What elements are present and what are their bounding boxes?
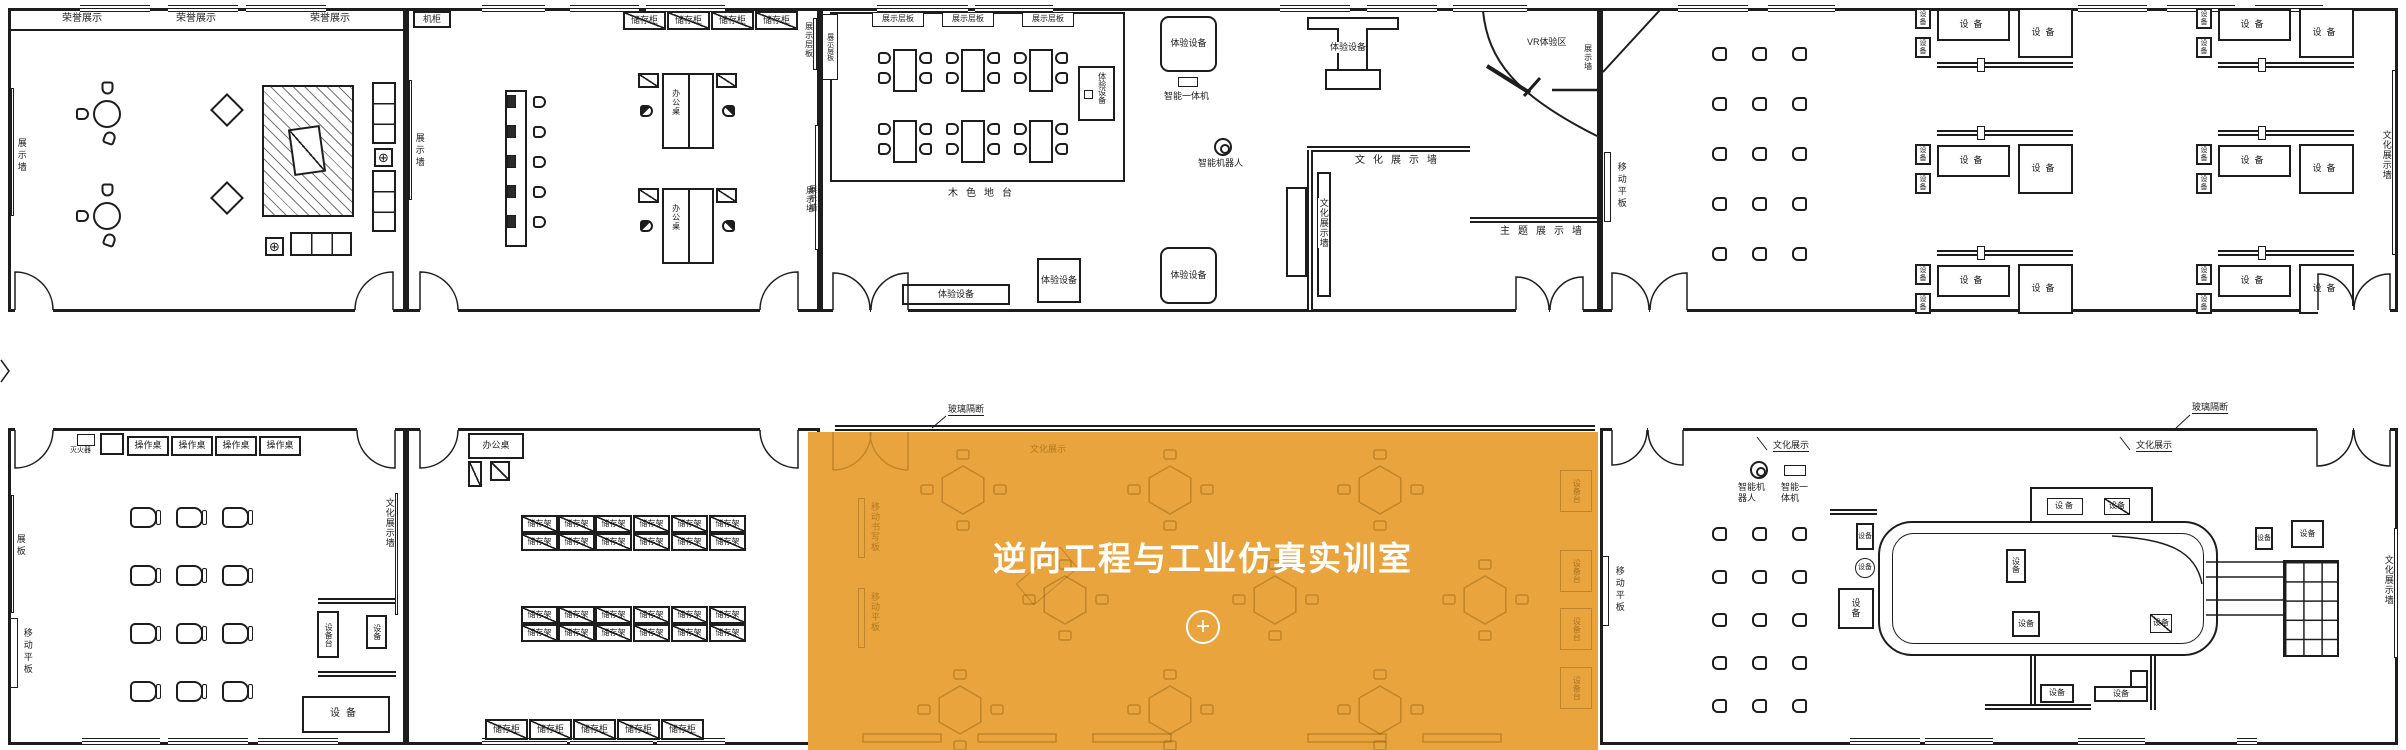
chair xyxy=(533,156,546,168)
storage-cabinet: 储存柜 xyxy=(623,11,666,30)
chair xyxy=(1792,97,1807,111)
cabinet xyxy=(638,73,659,88)
ghost-equipment-stand-label: 设备台 xyxy=(1572,479,1581,503)
window xyxy=(975,5,1053,12)
chair xyxy=(1792,197,1807,211)
door-opening xyxy=(2354,426,2390,434)
chair xyxy=(533,216,546,228)
equipment-box: 设备 xyxy=(2299,144,2354,194)
table xyxy=(893,49,917,92)
storage-rack: 储存架 xyxy=(709,533,746,551)
chair xyxy=(1752,570,1767,584)
desk-side xyxy=(248,626,253,641)
tea-table xyxy=(288,125,326,176)
monitor xyxy=(507,125,516,138)
door-opening xyxy=(1612,426,1647,434)
chair xyxy=(1712,247,1727,261)
equipment-box: 设备 xyxy=(2196,37,2212,58)
lshape-base: 设备 xyxy=(2094,686,2148,702)
chair xyxy=(1014,123,1027,135)
chair xyxy=(1712,699,1727,713)
equipment-rail xyxy=(1985,704,2091,710)
training-desk xyxy=(130,565,157,586)
chair xyxy=(878,143,891,155)
chair xyxy=(987,143,1000,155)
equipment-rail-v xyxy=(2150,656,2156,710)
chair xyxy=(1752,699,1767,713)
smart-aio-unit xyxy=(1178,77,1198,87)
pallet-grid xyxy=(2283,560,2339,657)
cabinet xyxy=(100,433,124,455)
desk-side xyxy=(202,626,207,641)
crosshair-icon: ⊕ xyxy=(269,240,280,254)
mobile-panel-label: 移动平板 xyxy=(22,628,33,676)
equipment-box: 设备 xyxy=(1856,523,1874,550)
equipment-box: 设备 xyxy=(2196,293,2212,314)
equipment-rail xyxy=(1937,130,2073,136)
rail-slider xyxy=(1977,126,1985,140)
equipment-box: 设备 xyxy=(1838,588,1874,629)
ghost-culture-display-label: 文化展示 xyxy=(1030,442,1066,455)
cabinet xyxy=(716,188,737,203)
cabinet xyxy=(468,461,482,487)
theme-wall-label: 主题展示墙 xyxy=(1500,226,1590,238)
corner-shelf: 展示层板 xyxy=(822,14,838,80)
storage-rack: 储存架 xyxy=(709,606,746,624)
floor-plan: 荣誉展示 荣誉展示 荣誉展示 展示墙 ⊕ ⊕ 机柜 储存柜 储存柜储存柜储存柜 … xyxy=(0,0,2406,750)
chair xyxy=(640,220,653,232)
window xyxy=(2078,738,2145,745)
theme-wall xyxy=(1470,217,1597,223)
chair xyxy=(1792,570,1807,584)
equipment-box: 设备 xyxy=(2196,8,2212,29)
display-wall-panel xyxy=(409,80,412,200)
chair xyxy=(987,72,1000,84)
culture-wall-label: 文化展示墙 xyxy=(1355,155,1445,167)
equipment-rail xyxy=(2218,250,2354,256)
operation-desk: 操作桌 xyxy=(127,436,169,456)
chair xyxy=(878,72,891,84)
mobile-panel xyxy=(1602,556,1609,626)
door-opening xyxy=(420,306,458,314)
chair xyxy=(946,52,959,64)
window xyxy=(258,738,338,745)
equipment-box: 设备 xyxy=(1915,144,1931,165)
room-office[interactable] xyxy=(406,8,820,312)
culture-wall-panel xyxy=(2394,528,2398,658)
round-table xyxy=(93,100,121,128)
vr-zone-label: VR体验区 xyxy=(1527,37,1567,48)
experience-equipment-label: 体验设备 xyxy=(1330,42,1366,53)
display-shelf: 展示层板 xyxy=(1022,12,1074,27)
crosshair-icon: ⊕ xyxy=(378,151,389,165)
equipment-group: 设备设备设备设备 xyxy=(2196,130,2354,196)
equipment-box: 设备 xyxy=(1915,37,1931,58)
mobile-panel-label: 移动平板 xyxy=(1614,566,1625,614)
training-desk xyxy=(130,623,157,644)
expand-room-button[interactable]: + xyxy=(1186,610,1220,644)
chair xyxy=(919,72,932,84)
display-board-label: 展板 xyxy=(15,534,26,558)
monitor xyxy=(507,185,516,198)
window xyxy=(877,5,968,12)
chair xyxy=(987,123,1000,135)
equipment-box: 设备 xyxy=(1915,173,1931,194)
training-desk xyxy=(176,681,203,702)
office-desk-label: 办公桌 xyxy=(671,204,681,231)
chair xyxy=(1712,527,1727,541)
culture-wall-label-v: 文化展示墙 xyxy=(1318,198,1329,248)
ghost-mobile-panel xyxy=(858,588,865,648)
smart-aio-unit xyxy=(1784,465,1806,476)
chair xyxy=(533,126,546,138)
smart-robot-icon xyxy=(1214,138,1232,156)
equipment-box: 设备 xyxy=(2218,265,2291,297)
storage-rack: 储存架 xyxy=(558,606,595,624)
chair xyxy=(946,123,959,135)
equipment-box: 设备 xyxy=(1915,8,1931,29)
display-shelf: 展示层板 xyxy=(872,12,924,27)
ghost-mobile-panel-label: 移动平板 xyxy=(869,592,882,632)
window xyxy=(2237,738,2257,745)
equipment-box: 设备 xyxy=(2218,145,2291,177)
chair xyxy=(1792,147,1807,161)
corridor-arrow xyxy=(1,360,9,382)
display-shelf-label: 展示层板 xyxy=(826,33,833,61)
door-opening xyxy=(2317,426,2353,434)
chair xyxy=(102,184,114,197)
equipment-group: 设备设备设备设备 xyxy=(1915,130,2073,196)
desk-side xyxy=(202,568,207,583)
desk-side xyxy=(248,684,253,699)
chair xyxy=(640,105,653,117)
office-desk-cluster: 办公桌 xyxy=(638,73,742,149)
rail-slider xyxy=(2258,246,2266,260)
chair xyxy=(76,210,89,222)
chair xyxy=(919,52,932,64)
chair xyxy=(878,52,891,64)
sofa xyxy=(290,232,352,256)
door-opening xyxy=(355,306,393,314)
chair xyxy=(722,220,735,232)
storage-rack: 储存架 xyxy=(521,515,558,533)
smart-robot-label: 智能机器人 xyxy=(1198,158,1243,169)
side-table: ⊕ xyxy=(374,148,393,167)
chair xyxy=(1792,656,1807,670)
door-opening xyxy=(1516,306,1549,314)
honor-display-label: 荣誉展示 xyxy=(310,13,350,25)
wood-platform-label: 木色地台 xyxy=(948,188,1020,200)
equipment-rail xyxy=(1830,509,1877,515)
equipment-group: 设备设备设备设备 xyxy=(1915,8,2073,74)
window xyxy=(482,5,545,12)
office-desk: 办公桌 xyxy=(662,73,714,149)
equipment-box: 设备 xyxy=(2018,264,2073,314)
desk-side xyxy=(248,568,253,583)
chair xyxy=(722,105,735,117)
chair xyxy=(1014,143,1027,155)
storage-rack: 储存架 xyxy=(633,533,670,551)
storage-rack: 储存架 xyxy=(633,606,670,624)
equipment-label: 设备 xyxy=(1858,564,1872,571)
experience-equipment-label: 体验设备 xyxy=(1097,72,1107,104)
chair xyxy=(1752,247,1767,261)
door-opening xyxy=(1550,306,1583,314)
storage-rack: 储存架 xyxy=(595,533,632,551)
chair xyxy=(946,72,959,84)
equipment-rail-v xyxy=(2030,656,2036,710)
display-wall-label: 展示墙 xyxy=(808,185,818,212)
monitor xyxy=(507,155,516,168)
door-opening xyxy=(2318,306,2354,314)
office-desk: 办公桌 xyxy=(662,188,714,264)
smart-aio-label: 智能一体机 xyxy=(1164,91,1209,102)
glass-partition-wall xyxy=(835,425,1595,431)
equipment-stand-label: 设备台 xyxy=(324,623,332,647)
window xyxy=(1768,5,1835,12)
glass-partition-label: 玻璃隔断 xyxy=(2192,402,2228,414)
desk-side xyxy=(156,510,161,525)
door-opening xyxy=(760,426,798,434)
chair xyxy=(1014,52,1027,64)
culture-wall-label-v: 文化展示墙 xyxy=(2383,555,2394,605)
chair xyxy=(1792,613,1807,627)
equipment-label: 设备 xyxy=(2011,558,2021,575)
storage-cabinet: 储存柜 xyxy=(755,11,798,30)
equipment-label: 设备 xyxy=(1850,599,1862,618)
chair xyxy=(1055,52,1068,64)
training-desk xyxy=(130,507,157,528)
equipment-box: 设备 xyxy=(2150,614,2172,633)
chair xyxy=(533,96,546,108)
equipment-rail xyxy=(2218,130,2354,136)
ghost-equipment-stand: 设备台 xyxy=(1560,470,1592,512)
chair xyxy=(1752,47,1767,61)
room-highlight-overlay[interactable]: 文化展示 移动书写板 移动平板 设备台 设备台 设备台 设备台 逆向工程与工业仿… xyxy=(808,432,1598,750)
experience-equipment-rounded: 体验设备 xyxy=(1160,16,1217,72)
chair xyxy=(1712,147,1727,161)
equipment-group: 设备设备设备设备 xyxy=(2196,8,2354,74)
experience-equipment-square: 体验设备 xyxy=(1037,258,1081,303)
experience-equipment-box: 体验设备 xyxy=(1078,66,1115,121)
culture-wall-panel xyxy=(2392,70,2396,255)
office-desk-cluster: 办公桌 xyxy=(638,188,742,264)
glass-partition-label: 玻璃隔断 xyxy=(948,404,984,416)
table xyxy=(961,49,985,92)
equipment-label: 设备 xyxy=(1858,533,1872,540)
equipment-lshape: 设备 xyxy=(2094,670,2148,702)
monitor xyxy=(507,215,516,228)
storage-rack: 储存架 xyxy=(521,606,558,624)
chair xyxy=(533,186,546,198)
ghost-floorplan xyxy=(808,432,1598,750)
equipment-rail xyxy=(2218,62,2354,68)
training-desk xyxy=(222,623,249,644)
chair xyxy=(946,143,959,155)
storage-rack: 储存架 xyxy=(521,533,558,551)
desk-side xyxy=(156,626,161,641)
window xyxy=(1367,5,1437,12)
culture-wall-label-v: 文化展示墙 xyxy=(2381,130,2392,180)
office-desk: 办公桌 xyxy=(468,433,524,459)
storage-cabinet: 储存柜 xyxy=(529,719,572,740)
cabinet xyxy=(716,73,737,88)
door-opening xyxy=(833,306,870,314)
smart-robot-icon xyxy=(1750,461,1768,479)
table xyxy=(961,120,985,163)
training-desk xyxy=(176,507,203,528)
equipment-box: 设备 xyxy=(366,615,387,649)
equipment-box: 设备 xyxy=(2291,520,2324,548)
storage-cabinet: 储存柜 xyxy=(661,719,704,740)
monitor xyxy=(507,95,516,108)
rail-slider xyxy=(1977,246,1985,260)
display-shelf: 展示层板 xyxy=(942,12,994,27)
rail-slider xyxy=(2258,58,2266,72)
operation-desk: 操作桌 xyxy=(259,436,301,456)
training-desk xyxy=(222,507,249,528)
display-board-panel xyxy=(11,495,14,613)
culture-display-label: 文化展示 xyxy=(1773,440,1809,452)
honor-display-label: 荣誉展示 xyxy=(176,13,216,25)
display-wall-label: 展示墙 xyxy=(414,133,425,169)
chair xyxy=(1712,570,1727,584)
equipment-box: 设备 xyxy=(1937,145,2010,177)
equipment-box: 设备 xyxy=(2018,144,2073,194)
equipment-box: 设备 xyxy=(1915,264,1931,285)
culture-wall xyxy=(1307,146,1470,152)
rail-slider xyxy=(1977,58,1985,72)
desk-side xyxy=(202,510,207,525)
chair xyxy=(1014,72,1027,84)
chair xyxy=(1055,123,1068,135)
equipment-box: 设备 xyxy=(2018,8,2073,58)
desk-side xyxy=(248,510,253,525)
storage-cabinet: 储存柜 xyxy=(617,719,660,740)
equipment-dot xyxy=(1084,90,1093,99)
server-cabinet: 机柜 xyxy=(413,11,451,28)
rail-slider xyxy=(2258,126,2266,140)
side-table: ⊕ xyxy=(265,237,284,256)
ibeam-base xyxy=(1325,69,1381,90)
honor-display-label: 荣誉展示 xyxy=(62,13,102,25)
desk-side xyxy=(202,684,207,699)
equipment-rail xyxy=(318,671,396,677)
equipment-box: 设备 xyxy=(2040,684,2074,703)
chair xyxy=(1792,247,1807,261)
experience-equipment-rounded: 体验设备 xyxy=(1160,247,1217,304)
door-opening xyxy=(420,426,458,434)
storage-rack: 储存架 xyxy=(633,515,670,533)
chair xyxy=(919,123,932,135)
culture-wall-shelf xyxy=(1286,187,1307,277)
mobile-panel xyxy=(1604,152,1611,222)
window xyxy=(1925,738,1993,745)
window xyxy=(82,738,160,745)
chair xyxy=(1792,699,1807,713)
display-shelf-label: 展示层板 xyxy=(804,22,814,58)
window xyxy=(1678,5,1748,12)
ghost-equipment-stand: 设备台 xyxy=(1560,608,1592,650)
equipment-rail xyxy=(318,598,396,604)
storage-rack: 储存架 xyxy=(671,624,708,642)
equipment-box-large: 设备 xyxy=(302,696,390,733)
ghost-equipment-stand: 设备台 xyxy=(1560,667,1592,709)
storage-rack: 储存架 xyxy=(671,606,708,624)
desk-side xyxy=(156,568,161,583)
chair xyxy=(1752,97,1767,111)
ghost-equipment-stand-label: 设备台 xyxy=(1572,617,1581,641)
chair xyxy=(1712,97,1727,111)
display-wall-label: 展示墙 xyxy=(1583,44,1593,71)
storage-rack: 储存架 xyxy=(671,515,708,533)
chair xyxy=(102,82,114,95)
smart-robot-label: 智能机器人 xyxy=(1738,482,1768,504)
desk-side xyxy=(156,684,161,699)
storage-cabinet: 储存柜 xyxy=(573,719,616,740)
equipment-box: 设备 xyxy=(2299,8,2354,58)
display-wall-label: 展示墙 xyxy=(16,138,27,174)
window xyxy=(1280,5,1350,12)
round-table xyxy=(93,202,121,230)
culture-display-label: 文化展示 xyxy=(2136,440,2172,452)
cabinet xyxy=(638,188,659,203)
table xyxy=(893,120,917,163)
table xyxy=(1029,49,1053,92)
ghost-equipment-stand-label: 设备台 xyxy=(1572,676,1581,700)
experience-equipment-long: 体验设备 xyxy=(902,284,1010,305)
storage-rack: 储存架 xyxy=(633,624,670,642)
storage-cabinet: 储存柜 xyxy=(711,11,754,30)
equipment-circle: 设备 xyxy=(1855,558,1875,578)
equipment-label: 设备 xyxy=(2257,535,2271,542)
chair xyxy=(1792,47,1807,61)
office-desk-label: 办公桌 xyxy=(671,89,681,116)
culture-wall-vertical xyxy=(1307,150,1313,310)
door-opening xyxy=(760,306,798,314)
culture-wall-panel xyxy=(395,493,398,615)
track-top-module: 设备 设备 xyxy=(2030,487,2153,523)
door-opening xyxy=(357,426,395,434)
chair xyxy=(1055,72,1068,84)
chair xyxy=(1752,656,1767,670)
door-opening xyxy=(1612,306,1649,314)
equipment-box: 设备 xyxy=(2047,498,2083,515)
storage-rack: 储存架 xyxy=(595,624,632,642)
operation-desk: 操作桌 xyxy=(171,436,213,456)
equipment-box: 设备 xyxy=(2196,264,2212,285)
mobile-panel-label: 移动平板 xyxy=(1616,162,1627,210)
training-desk xyxy=(130,681,157,702)
window xyxy=(2078,5,2147,12)
equipment-label: 设备 xyxy=(372,624,380,640)
chair xyxy=(878,123,891,135)
chair xyxy=(1712,47,1727,61)
window xyxy=(168,738,248,745)
door-opening xyxy=(2354,306,2390,314)
equipment-stand: 设备台 xyxy=(317,611,339,658)
training-desk xyxy=(222,565,249,586)
storage-cabinet: 储存柜 xyxy=(485,719,528,740)
culture-wall-label-v: 文化展示墙 xyxy=(384,498,395,548)
storage-cabinet: 储存柜 xyxy=(667,11,710,30)
chair xyxy=(1712,197,1727,211)
door-opening xyxy=(1650,306,1687,314)
storage-rack: 储存架 xyxy=(595,515,632,533)
window xyxy=(1850,738,1920,745)
storage-rack: 储存架 xyxy=(595,606,632,624)
storage-rack: 储存架 xyxy=(558,533,595,551)
